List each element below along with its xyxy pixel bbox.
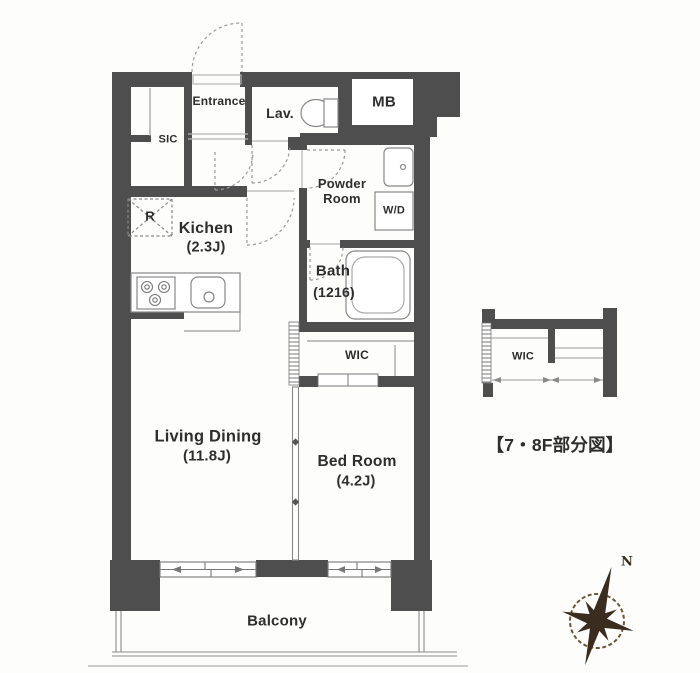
label-lavatory: Lav.: [266, 105, 294, 121]
annex-wall-right: [603, 308, 617, 397]
wall-entrance-lav-separator: [245, 87, 252, 145]
label-kitchen-area: (2.3J): [186, 240, 225, 257]
balcony-rail-left: [116, 611, 121, 652]
wall-top-middle: [240, 72, 338, 87]
label-refrigerator: R: [145, 210, 155, 225]
stove-icon: [137, 277, 175, 309]
wall-bath-top-left: [299, 240, 310, 248]
label-powder-room: Powder Room: [306, 177, 378, 207]
lavatory-door-arc: [252, 145, 290, 183]
washbasin-icon: [384, 148, 413, 186]
label-meter-box: MB: [372, 93, 396, 110]
label-compass-north: N: [621, 556, 633, 571]
toilet-icon: [301, 99, 338, 127]
label-annex-caption: 【7・8F部分図】: [487, 435, 624, 455]
label-bath-size: (1216): [313, 284, 355, 300]
entrance-step-line: [188, 134, 248, 139]
pillar-bottom-right: [391, 560, 432, 611]
pillar-bottom-left: [110, 560, 160, 611]
living-window: [160, 562, 256, 577]
wall-bottom-center: [256, 560, 328, 577]
label-sic: SIC: [159, 134, 178, 147]
label-living-dining-area: (11.8J): [183, 447, 231, 464]
annex-shelf-right: [555, 348, 603, 358]
label-bath: Bath: [316, 262, 350, 279]
floor-plan-page: Entrance SIC Lav. MB Powder Room W/D Kic…: [0, 0, 700, 673]
wall-bath-left: [299, 248, 307, 324]
label-bed-room: Bed Room: [317, 453, 396, 471]
label-balcony: Balcony: [247, 612, 307, 629]
partial-diagram: [482, 308, 617, 397]
wall-right: [414, 137, 430, 562]
label-entrance: Entrance: [193, 95, 246, 109]
annex-wall-top: [490, 319, 607, 329]
floor-plan-canvas: [0, 0, 700, 673]
wall-wic-bottom-left: [299, 376, 318, 387]
kitchen-counter-edge: [184, 312, 240, 331]
sliding-partition: [292, 387, 299, 560]
annex-hatch: [482, 323, 491, 383]
living-door-arc: [247, 198, 294, 245]
wic-bifold-doors: [318, 374, 378, 386]
label-wic: WIC: [345, 349, 369, 363]
entrance-door-arc: [192, 23, 242, 72]
wall-bath-bottom: [299, 322, 430, 332]
wall-sic-shelf-stub: [131, 135, 151, 142]
bedroom-window: [328, 562, 391, 577]
label-washer-dryer: W/D: [383, 205, 405, 218]
label-bed-room-area: (4.2J): [336, 474, 375, 491]
balcony-rail-bottom: [112, 652, 457, 656]
label-living-dining: Living Dining: [154, 428, 261, 447]
wall-top-left: [112, 72, 192, 87]
sic-door-arc: [215, 152, 253, 190]
wall-left: [112, 72, 131, 562]
entrance-door-threshold: [193, 75, 241, 84]
wall-powder-top: [300, 133, 345, 145]
balcony-rail-right: [419, 611, 424, 652]
annex-wall-inner: [548, 329, 555, 363]
pipe-shaft-hatch: [289, 322, 299, 385]
compass-major-points: [550, 558, 648, 673]
annex-wall-stub: [483, 383, 493, 397]
compass-rose-icon: [550, 558, 648, 673]
label-annex-wic: WIC: [512, 351, 534, 364]
label-kitchen: Kichen: [179, 220, 234, 238]
